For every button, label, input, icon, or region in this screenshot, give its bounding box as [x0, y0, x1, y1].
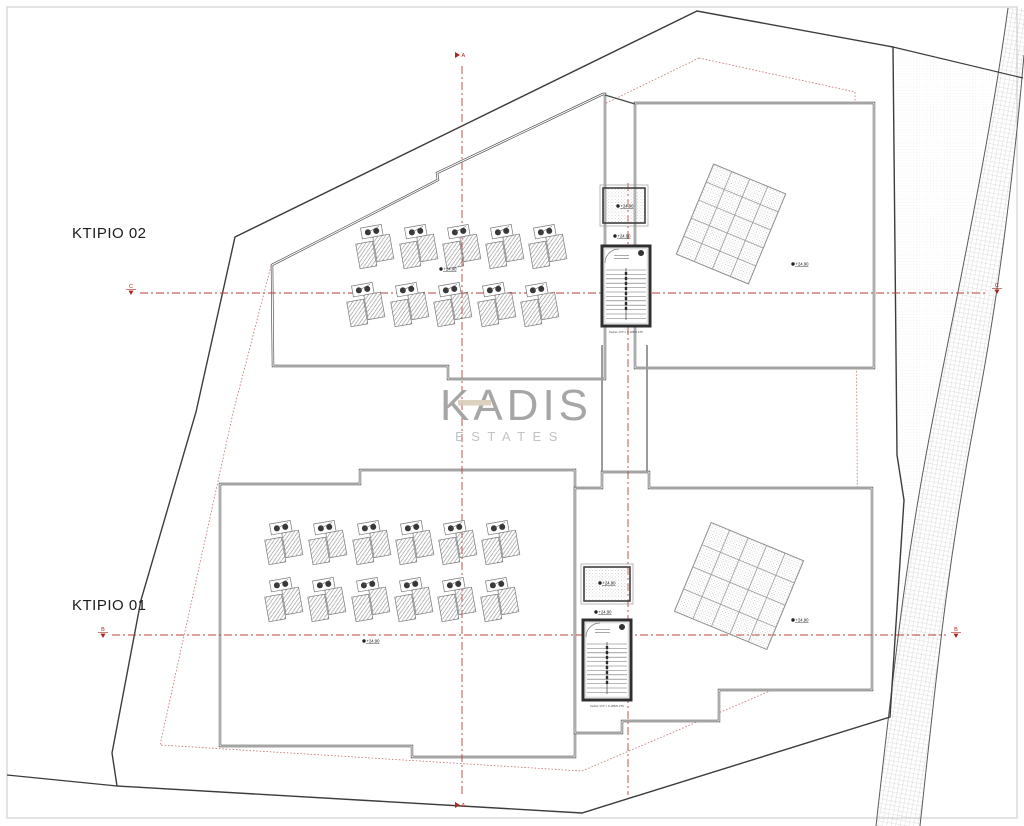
site-plan-page: Σκάλα 17Ρ × 0.185/0.275Σκάλα 17Ρ × 0.185…: [0, 0, 1024, 826]
watermark-accent-bar: [458, 400, 491, 406]
grid-marker-b-right-label: B: [954, 627, 958, 633]
watermark: KADIS ESTATES: [440, 381, 592, 444]
grid-marker-b-right: B: [951, 627, 961, 638]
elevation-mark: +24.90: [613, 233, 631, 238]
elevation-value: +24.90: [796, 617, 810, 622]
elevation-value: +24.90: [599, 609, 613, 614]
elevation-value: +24.90: [796, 261, 810, 266]
grid-marker-c-left: C: [126, 284, 136, 295]
grid-marker-c-right-label: C: [995, 283, 999, 289]
elevation-value: +24.90: [603, 580, 617, 585]
boundary-extension-west: [7, 775, 117, 786]
elevation-value: +24.90: [621, 203, 635, 208]
watermark-sub: ESTATES: [455, 429, 565, 444]
stair-core-ktirio-02: Σκάλα 17Ρ × 0.185/0.275: [602, 246, 650, 334]
label-ktirio-02: KTIPIO 02: [72, 225, 147, 242]
elevation-value: +24.90: [444, 266, 458, 271]
stair-note-ktirio-02: Σκάλα 17Ρ × 0.185/0.275: [609, 330, 643, 334]
elevation-value: +24.90: [618, 233, 632, 238]
grid-marker-b-left-label: B: [101, 627, 105, 633]
stair-core-ktirio-01: Σκάλα 17Ρ × 0.185/0.275: [583, 620, 631, 708]
stair-note-ktirio-01: Σκάλα 17Ρ × 0.185/0.275: [590, 704, 624, 708]
section-marker-a-top: A: [455, 52, 466, 59]
grid-marker-b-left: B: [98, 627, 108, 638]
section-marker-a-bottom-label: A: [462, 803, 466, 809]
grid-marker-c-left-label: C: [129, 284, 133, 290]
label-ktirio-01: KTIPIO 01: [72, 597, 147, 614]
section-marker-a-top-label: A: [462, 53, 466, 59]
site-plan-drawing: Σκάλα 17Ρ × 0.185/0.275Σκάλα 17Ρ × 0.185…: [0, 0, 1024, 826]
elevation-value: +24.90: [367, 638, 381, 643]
